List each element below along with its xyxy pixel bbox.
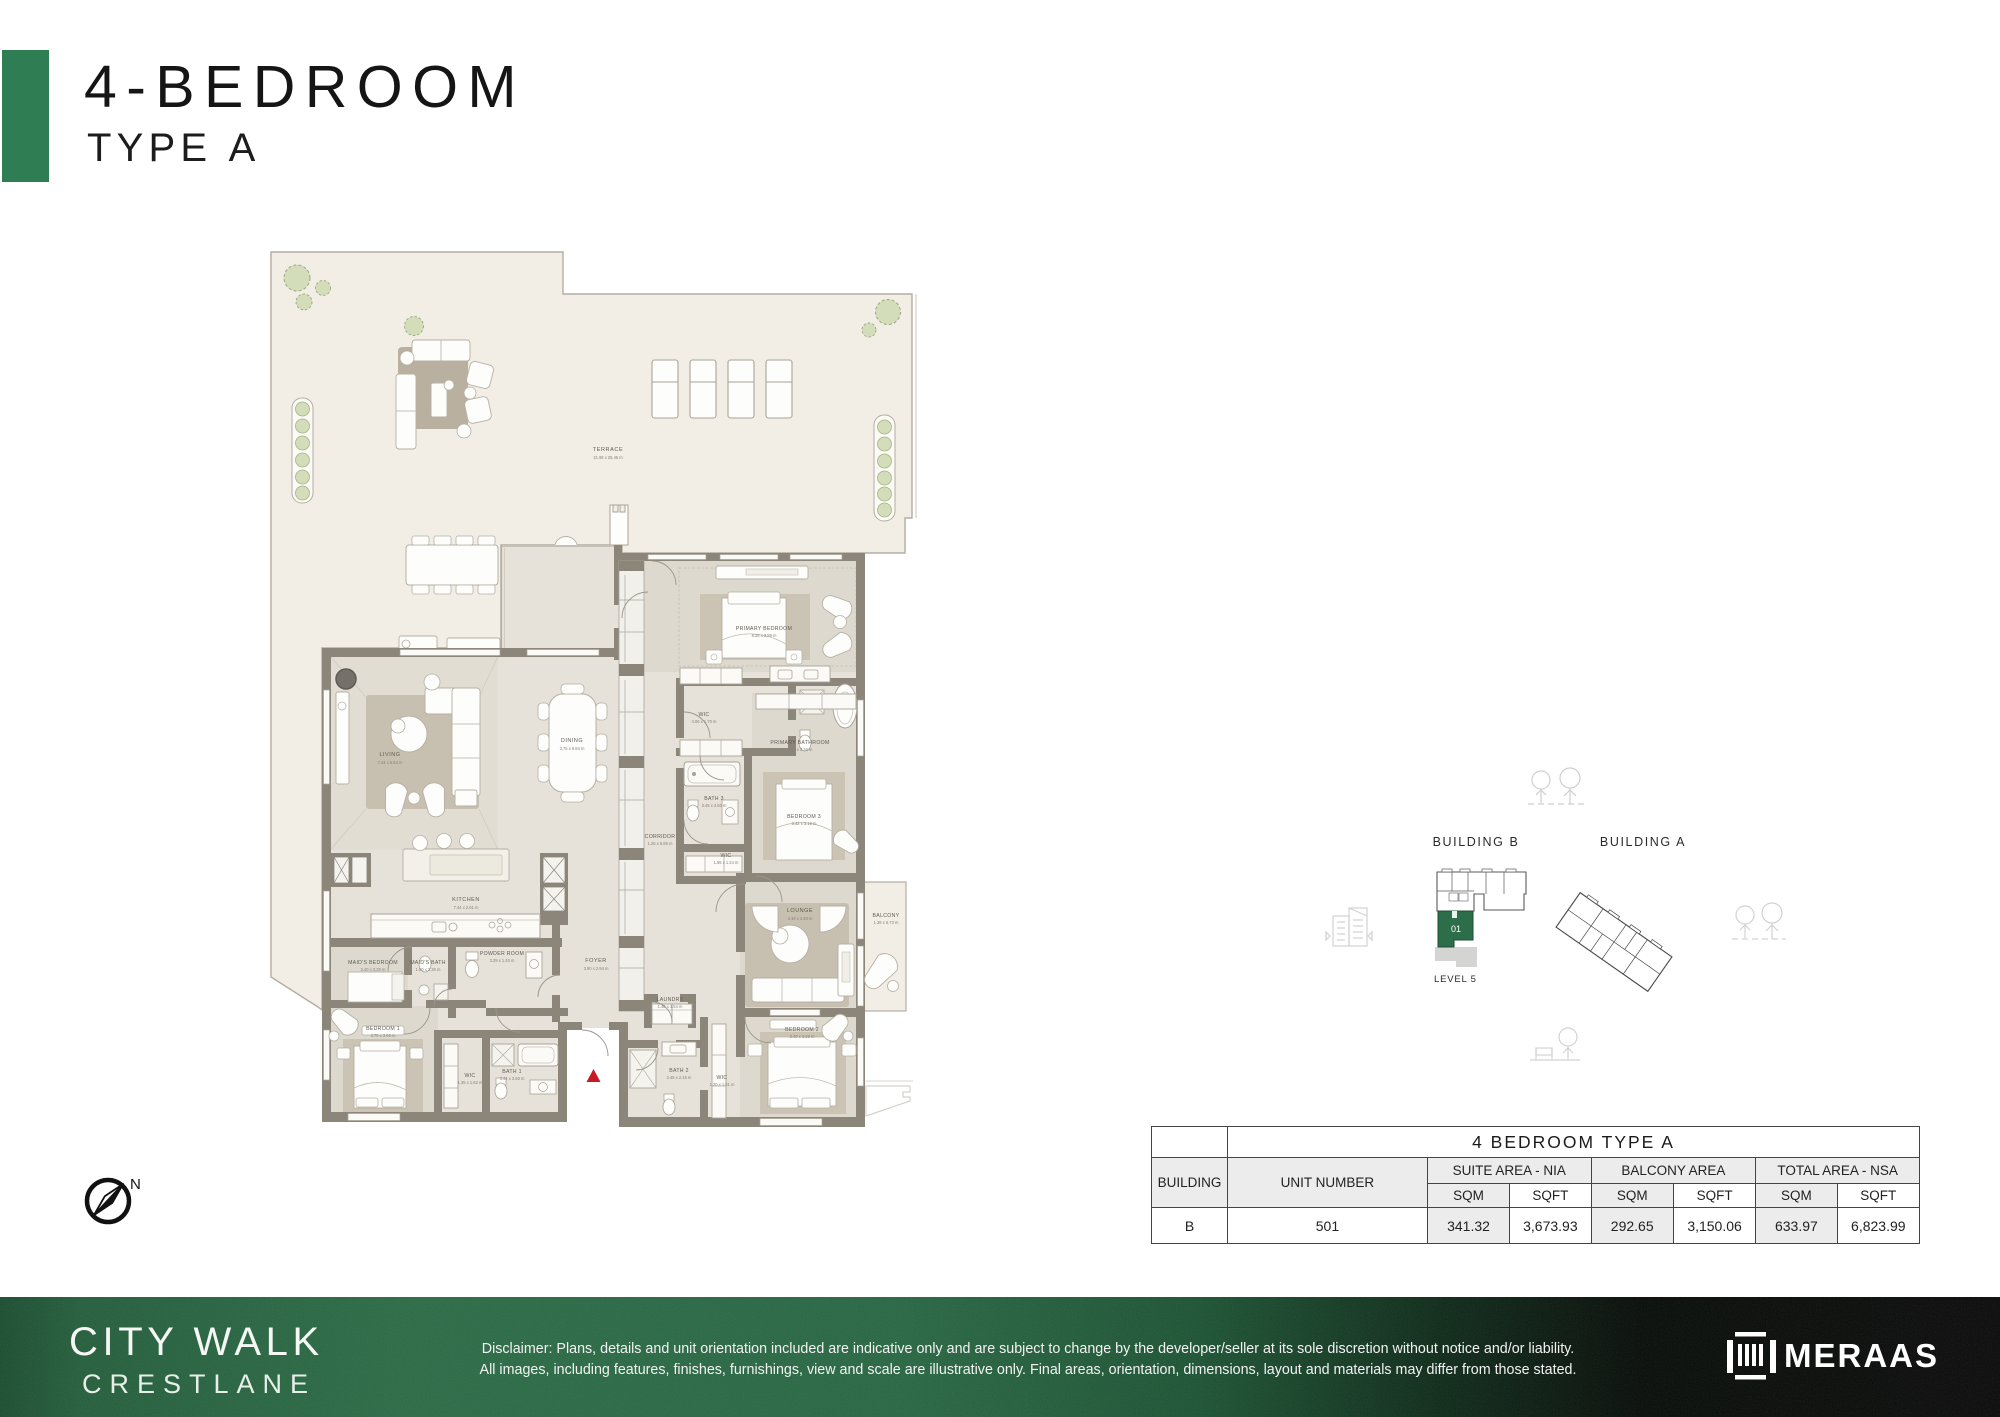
svg-text:BUILDING B: BUILDING B xyxy=(1433,835,1520,849)
svg-text:MAID'S BEDROOM: MAID'S BEDROOM xyxy=(348,960,398,966)
svg-text:3.45 x 3.50 m: 3.45 x 3.50 m xyxy=(702,803,727,808)
svg-text:8.35 x 3.89 m: 8.35 x 3.89 m xyxy=(752,633,777,638)
svg-text:1.25 x 6.65 m: 1.25 x 6.65 m xyxy=(648,841,673,846)
svg-text:FOYER: FOYER xyxy=(585,958,606,964)
svg-text:PRIMARY BEDROOM: PRIMARY BEDROOM xyxy=(736,626,792,632)
svg-text:POWDER ROOM: POWDER ROOM xyxy=(480,951,524,957)
svg-text:1.35 x 1.82 m: 1.35 x 1.82 m xyxy=(458,1080,483,1085)
svg-text:1.40 x 1.54 m: 1.40 x 1.54 m xyxy=(658,1004,683,1009)
svg-text:1.55 x 1.24 m: 1.55 x 1.24 m xyxy=(714,860,739,865)
svg-text:WIC: WIC xyxy=(465,1073,476,1079)
svg-text:3.40 x 3.29 m: 3.40 x 3.29 m xyxy=(790,1034,815,1039)
svg-text:3.44 x 3.50 m: 3.44 x 3.50 m xyxy=(500,1076,525,1081)
svg-text:LIVING: LIVING xyxy=(379,752,400,758)
svg-text:1.38 x 6.73 m: 1.38 x 6.73 m xyxy=(874,920,899,925)
svg-text:4.06 x 1.70 m: 4.06 x 1.70 m xyxy=(692,719,717,724)
svg-text:7.44 x 2.91 m: 7.44 x 2.91 m xyxy=(454,905,479,910)
svg-text:KITCHEN: KITCHEN xyxy=(452,897,480,903)
svg-text:7.44 x 6.84 m: 7.44 x 6.84 m xyxy=(378,760,403,765)
svg-text:MAID'S BATH: MAID'S BATH xyxy=(410,960,446,966)
svg-text:BEDROOM 2: BEDROOM 2 xyxy=(785,1027,819,1033)
svg-text:4.19 x 4.40 m: 4.19 x 4.40 m xyxy=(788,916,813,921)
svg-text:BEDROOM 3: BEDROOM 3 xyxy=(787,814,821,820)
svg-text:BEDROOM 1: BEDROOM 1 xyxy=(366,1026,400,1032)
svg-text:N: N xyxy=(130,1176,141,1193)
svg-text:DINING: DINING xyxy=(561,738,583,744)
svg-text:BATH 1: BATH 1 xyxy=(502,1069,522,1075)
svg-text:2.40 x 3.30 m: 2.40 x 3.30 m xyxy=(361,967,386,972)
svg-text:21.98 x 25.45 m: 21.98 x 25.45 m xyxy=(593,455,623,460)
svg-text:3.75 x 6.84 m: 3.75 x 6.84 m xyxy=(560,746,585,751)
svg-text:01: 01 xyxy=(1451,924,1461,934)
svg-text:WIC: WIC xyxy=(721,853,732,859)
svg-text:LEVEL 5: LEVEL 5 xyxy=(1434,974,1477,985)
svg-text:1.50 x 2.30 m: 1.50 x 2.30 m xyxy=(416,967,441,972)
svg-text:MERAAS: MERAAS xyxy=(1784,1337,1939,1374)
svg-text:3.42 x 3.19 m: 3.42 x 3.19 m xyxy=(792,821,817,826)
svg-text:WIC: WIC xyxy=(699,712,710,718)
svg-text:3.40 x 3.26 m: 3.40 x 3.26 m xyxy=(788,747,813,752)
svg-text:3.90 x 2.94 m: 3.90 x 2.94 m xyxy=(584,966,609,971)
svg-text:BATH 2: BATH 2 xyxy=(669,1068,689,1074)
svg-text:3.29 x 1.40 m: 3.29 x 1.40 m xyxy=(490,958,515,963)
svg-text:LAUNDRY: LAUNDRY xyxy=(657,997,684,1003)
svg-text:CORRIDOR: CORRIDOR xyxy=(645,834,676,840)
svg-text:BALCONY: BALCONY xyxy=(873,913,900,919)
svg-text:WIC: WIC xyxy=(717,1075,728,1081)
svg-text:BATH 3: BATH 3 xyxy=(704,796,724,802)
svg-text:BUILDING A: BUILDING A xyxy=(1600,835,1686,849)
svg-text:1.20 x 1.81 m: 1.20 x 1.81 m xyxy=(710,1082,735,1087)
svg-text:3.75 x 3.65 m: 3.75 x 3.65 m xyxy=(371,1033,396,1038)
svg-text:PRIMARY BATHROOM: PRIMARY BATHROOM xyxy=(770,740,829,746)
svg-text:LOUNGE: LOUNGE xyxy=(787,908,813,914)
svg-text:TERRACE: TERRACE xyxy=(593,447,623,453)
svg-text:2.45 x 2.15 m: 2.45 x 2.15 m xyxy=(667,1075,692,1080)
